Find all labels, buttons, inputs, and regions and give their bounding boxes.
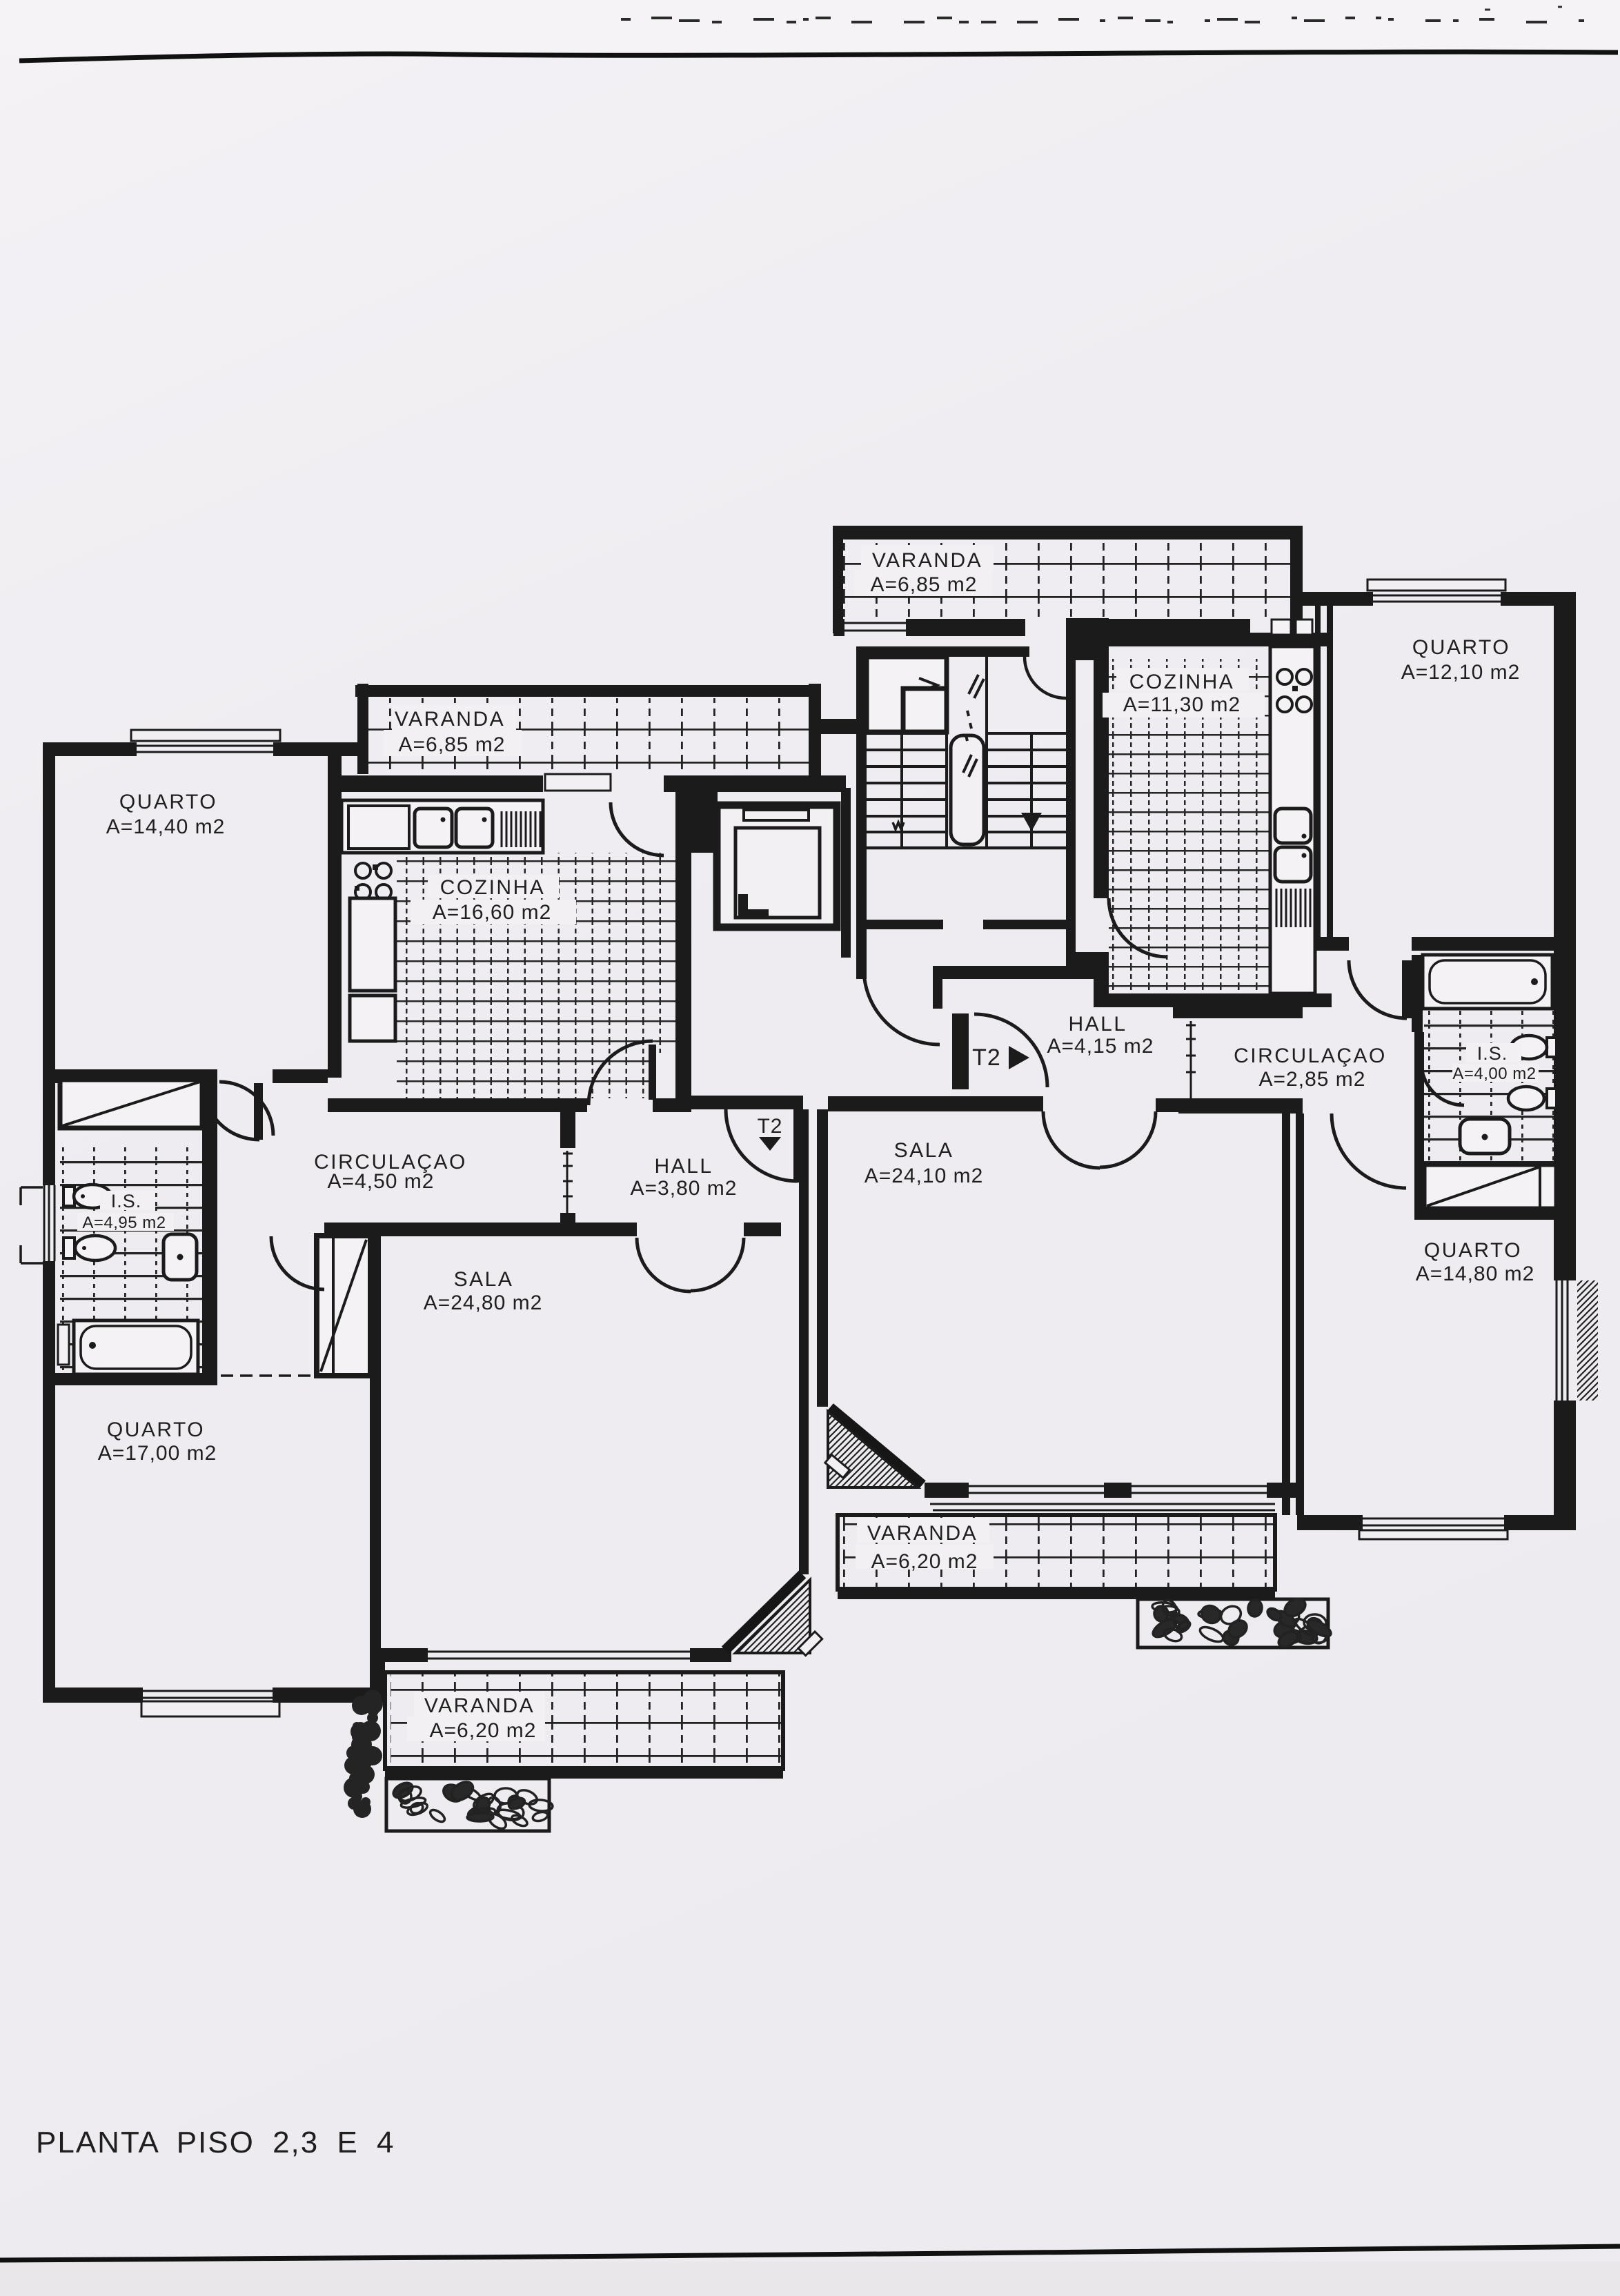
- svg-text:HALL: HALL: [654, 1155, 713, 1178]
- svg-text:A=6,20 m2: A=6,20 m2: [430, 1719, 537, 1742]
- svg-text:QUARTO: QUARTO: [107, 1418, 205, 1441]
- svg-text:A=14,40 m2: A=14,40 m2: [106, 815, 226, 838]
- svg-text:PLANTA PISO 2,3 E 4: PLANTA PISO 2,3 E 4: [36, 2126, 395, 2159]
- svg-text:A=6,20 m2: A=6,20 m2: [871, 1550, 978, 1573]
- svg-text:A=11,30 m2: A=11,30 m2: [1123, 693, 1241, 716]
- svg-text:VARANDA: VARANDA: [395, 708, 505, 731]
- svg-text:I.S.: I.S.: [111, 1191, 142, 1211]
- svg-text:A=6,85 m2: A=6,85 m2: [871, 573, 978, 596]
- svg-text:A=24,80 m2: A=24,80 m2: [424, 1291, 543, 1314]
- svg-text:CIRCULAÇAO: CIRCULAÇAO: [1234, 1045, 1387, 1067]
- svg-text:QUARTO: QUARTO: [1424, 1239, 1522, 1262]
- svg-text:A=12,10 m2: A=12,10 m2: [1401, 661, 1521, 684]
- svg-text:A=14,80 m2: A=14,80 m2: [1416, 1263, 1535, 1285]
- svg-text:VARANDA: VARANDA: [867, 1522, 978, 1545]
- svg-text:A=4,15 m2: A=4,15 m2: [1047, 1035, 1154, 1058]
- svg-text:A=17,00 m2: A=17,00 m2: [98, 1442, 217, 1465]
- svg-text:COZINHA: COZINHA: [440, 876, 546, 899]
- svg-text:SALA: SALA: [894, 1139, 954, 1162]
- svg-text:T2: T2: [757, 1115, 782, 1138]
- svg-text:A=3,80 m2: A=3,80 m2: [631, 1177, 738, 1200]
- svg-text:VARANDA: VARANDA: [872, 549, 982, 572]
- svg-text:A=4,95 m2: A=4,95 m2: [82, 1214, 166, 1232]
- svg-text:A=24,10 m2: A=24,10 m2: [865, 1165, 984, 1187]
- svg-text:A=4,50 m2: A=4,50 m2: [328, 1170, 435, 1193]
- svg-text:T2: T2: [972, 1045, 1001, 1071]
- svg-text:COZINHA: COZINHA: [1129, 671, 1235, 693]
- svg-text:I.S.: I.S.: [1477, 1043, 1508, 1064]
- svg-text:VARANDA: VARANDA: [424, 1694, 535, 1717]
- svg-text:A=2,85 m2: A=2,85 m2: [1259, 1068, 1366, 1091]
- svg-text:A=6,85 m2: A=6,85 m2: [399, 733, 506, 756]
- svg-text:A=16,60 m2: A=16,60 m2: [433, 901, 552, 924]
- svg-text:QUARTO: QUARTO: [1412, 636, 1510, 659]
- svg-text:SALA: SALA: [454, 1268, 514, 1291]
- svg-text:A=4,00 m2: A=4,00 m2: [1452, 1065, 1536, 1083]
- svg-text:HALL: HALL: [1068, 1013, 1127, 1036]
- svg-text:QUARTO: QUARTO: [119, 791, 217, 813]
